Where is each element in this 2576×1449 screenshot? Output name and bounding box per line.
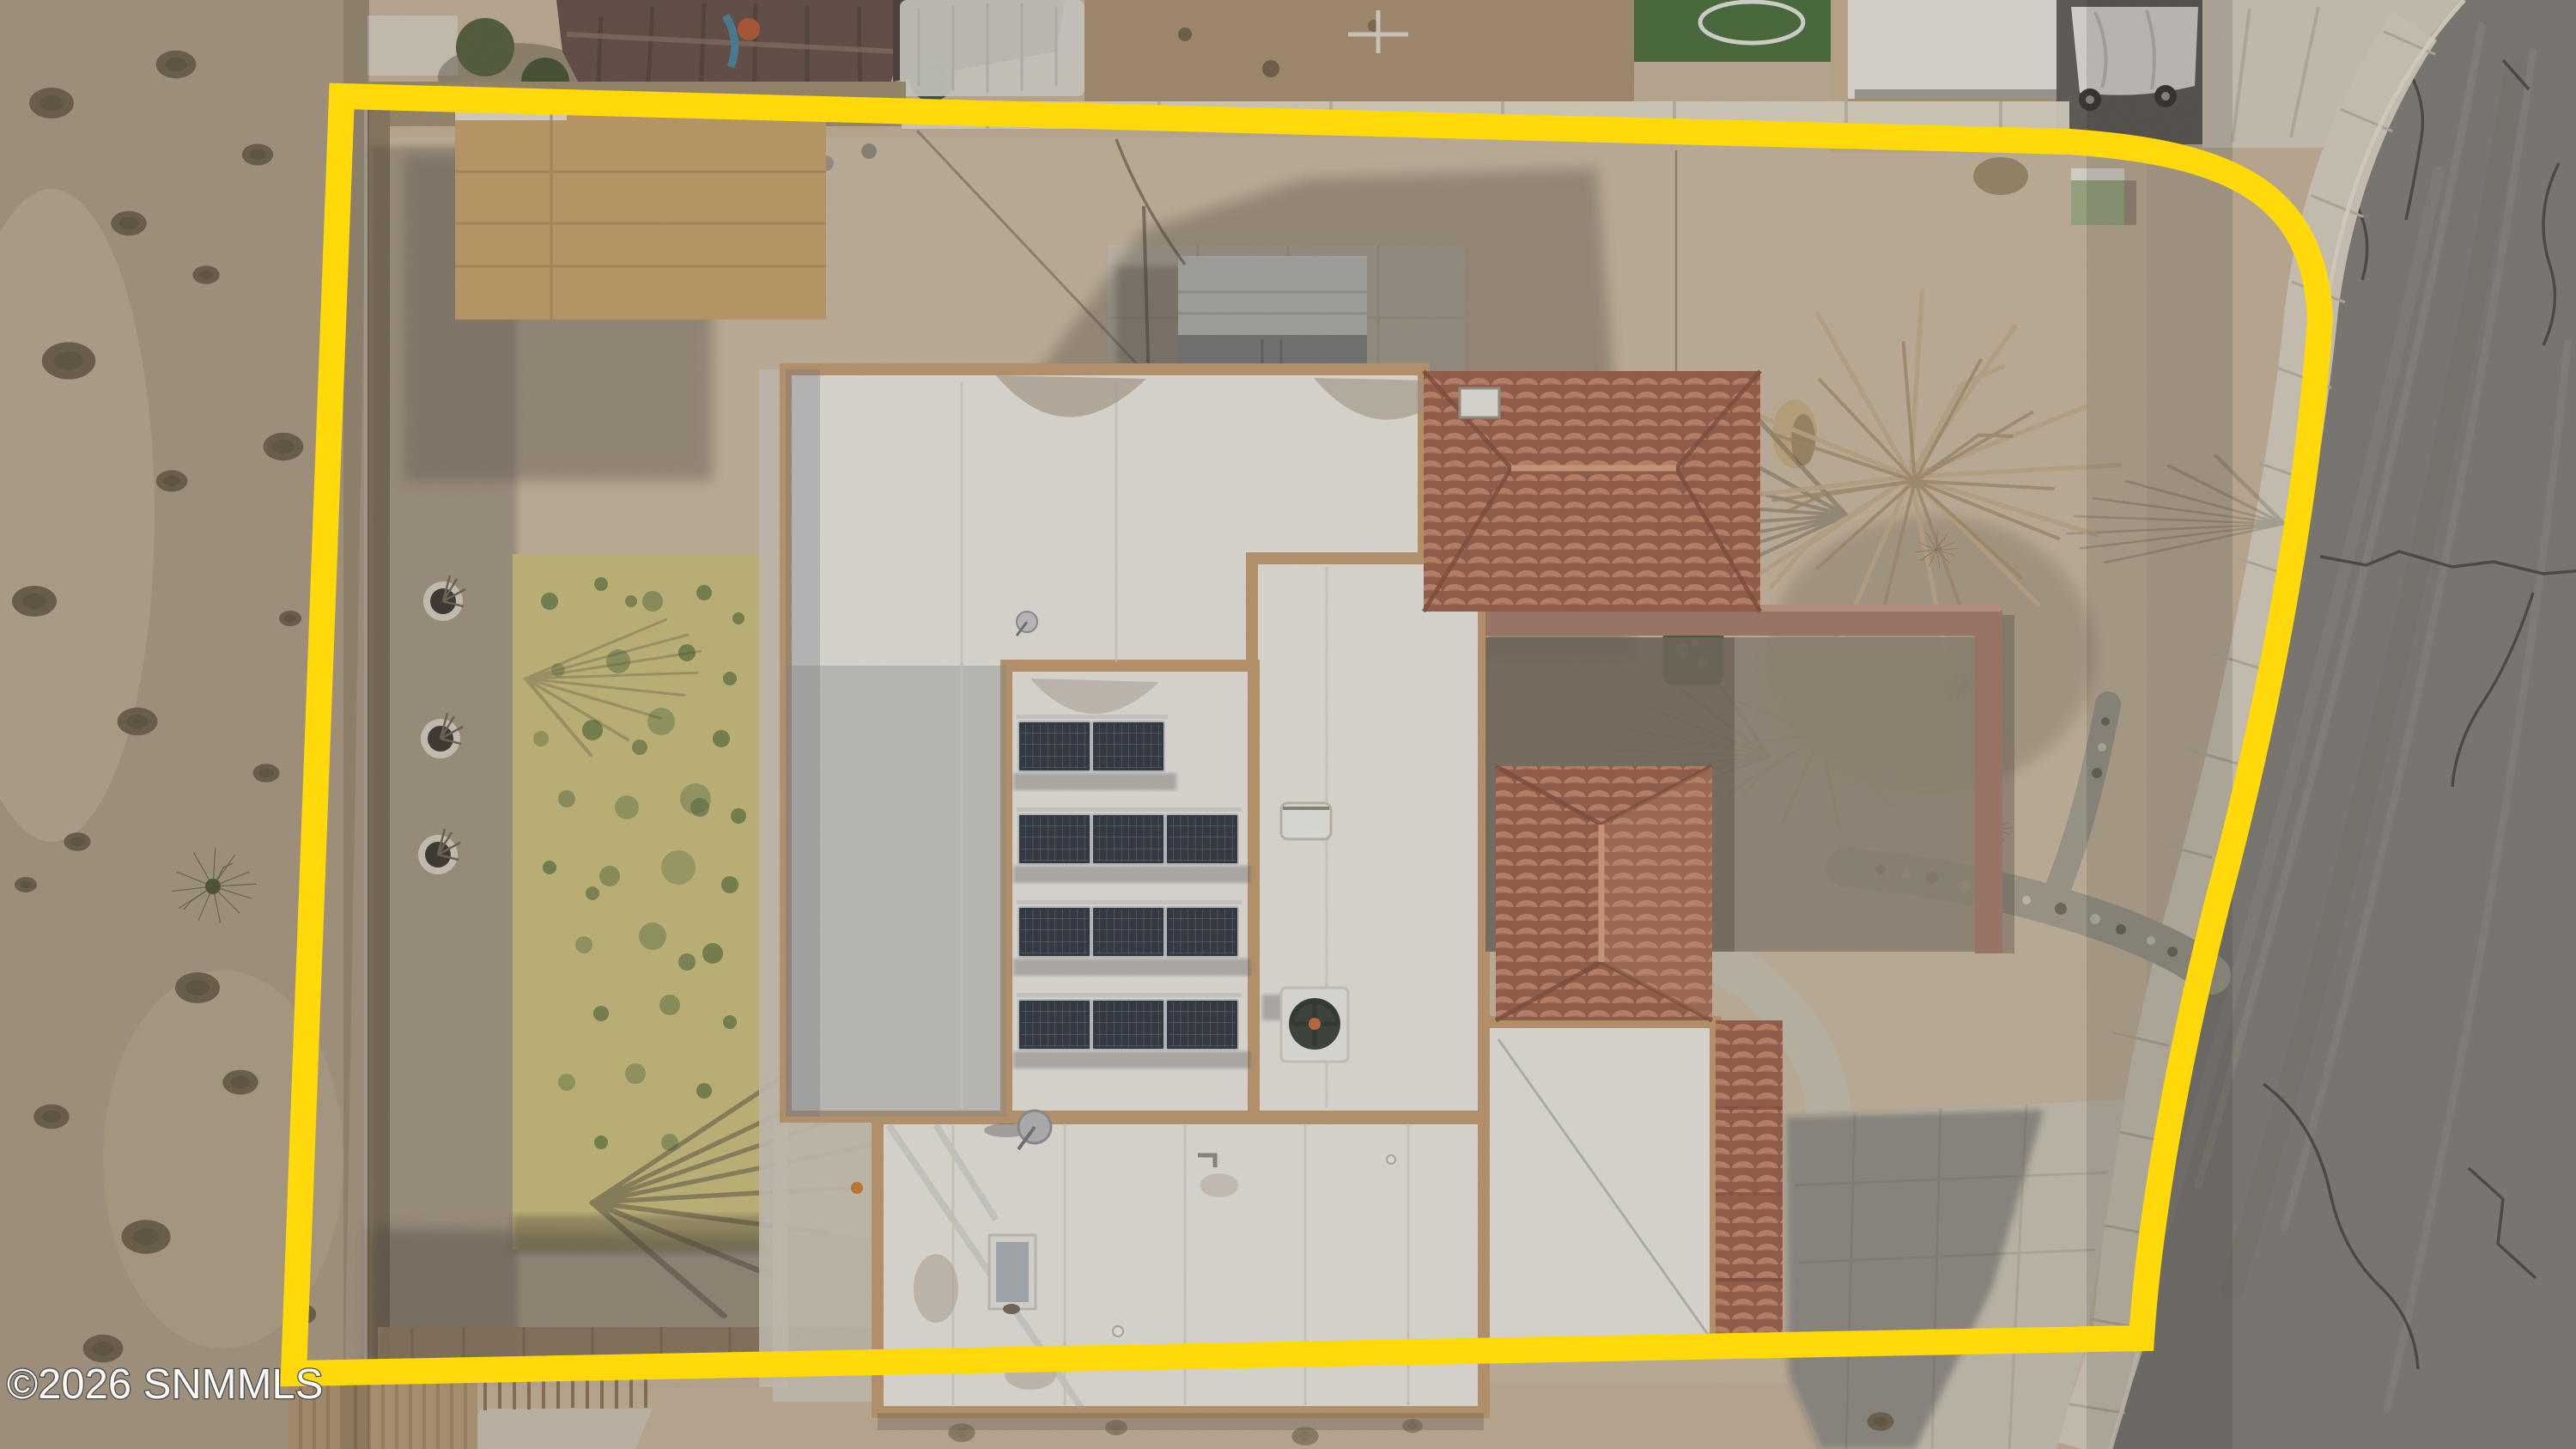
aerial-photo: ©2026 SNMMLS bbox=[0, 0, 2576, 1449]
warm-cast bbox=[0, 0, 2576, 1449]
aerial-photo-canvas: ©2026 SNMMLS bbox=[0, 0, 2576, 1449]
watermark-text: ©2026 SNMMLS bbox=[7, 1361, 323, 1408]
